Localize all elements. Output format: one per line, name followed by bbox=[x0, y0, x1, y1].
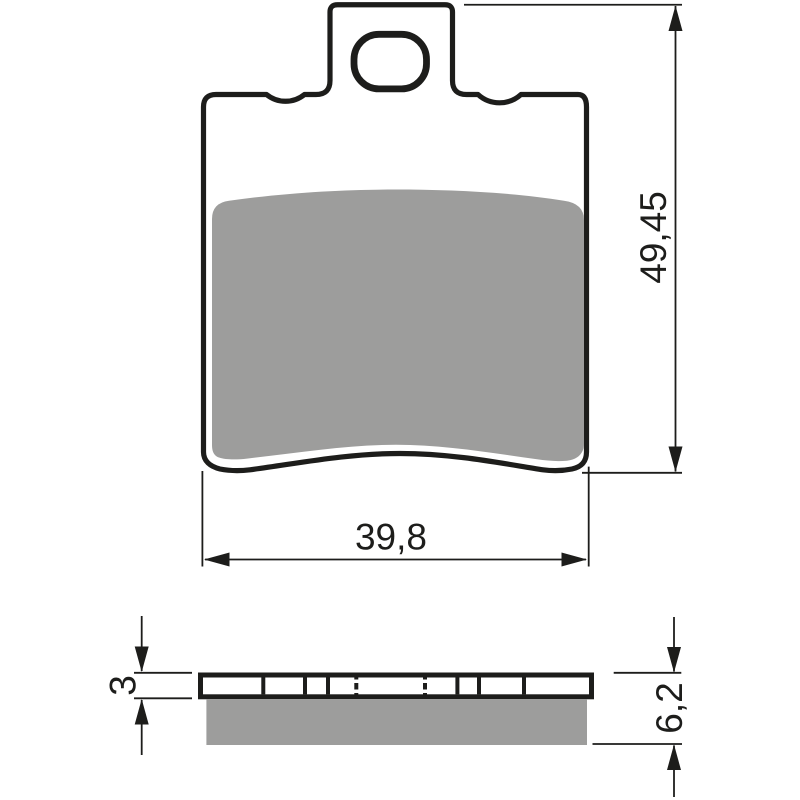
svg-text:3: 3 bbox=[103, 675, 144, 696]
svg-text:6,2: 6,2 bbox=[649, 682, 690, 733]
svg-text:39,8: 39,8 bbox=[355, 517, 427, 558]
svg-text:49,45: 49,45 bbox=[633, 191, 674, 284]
